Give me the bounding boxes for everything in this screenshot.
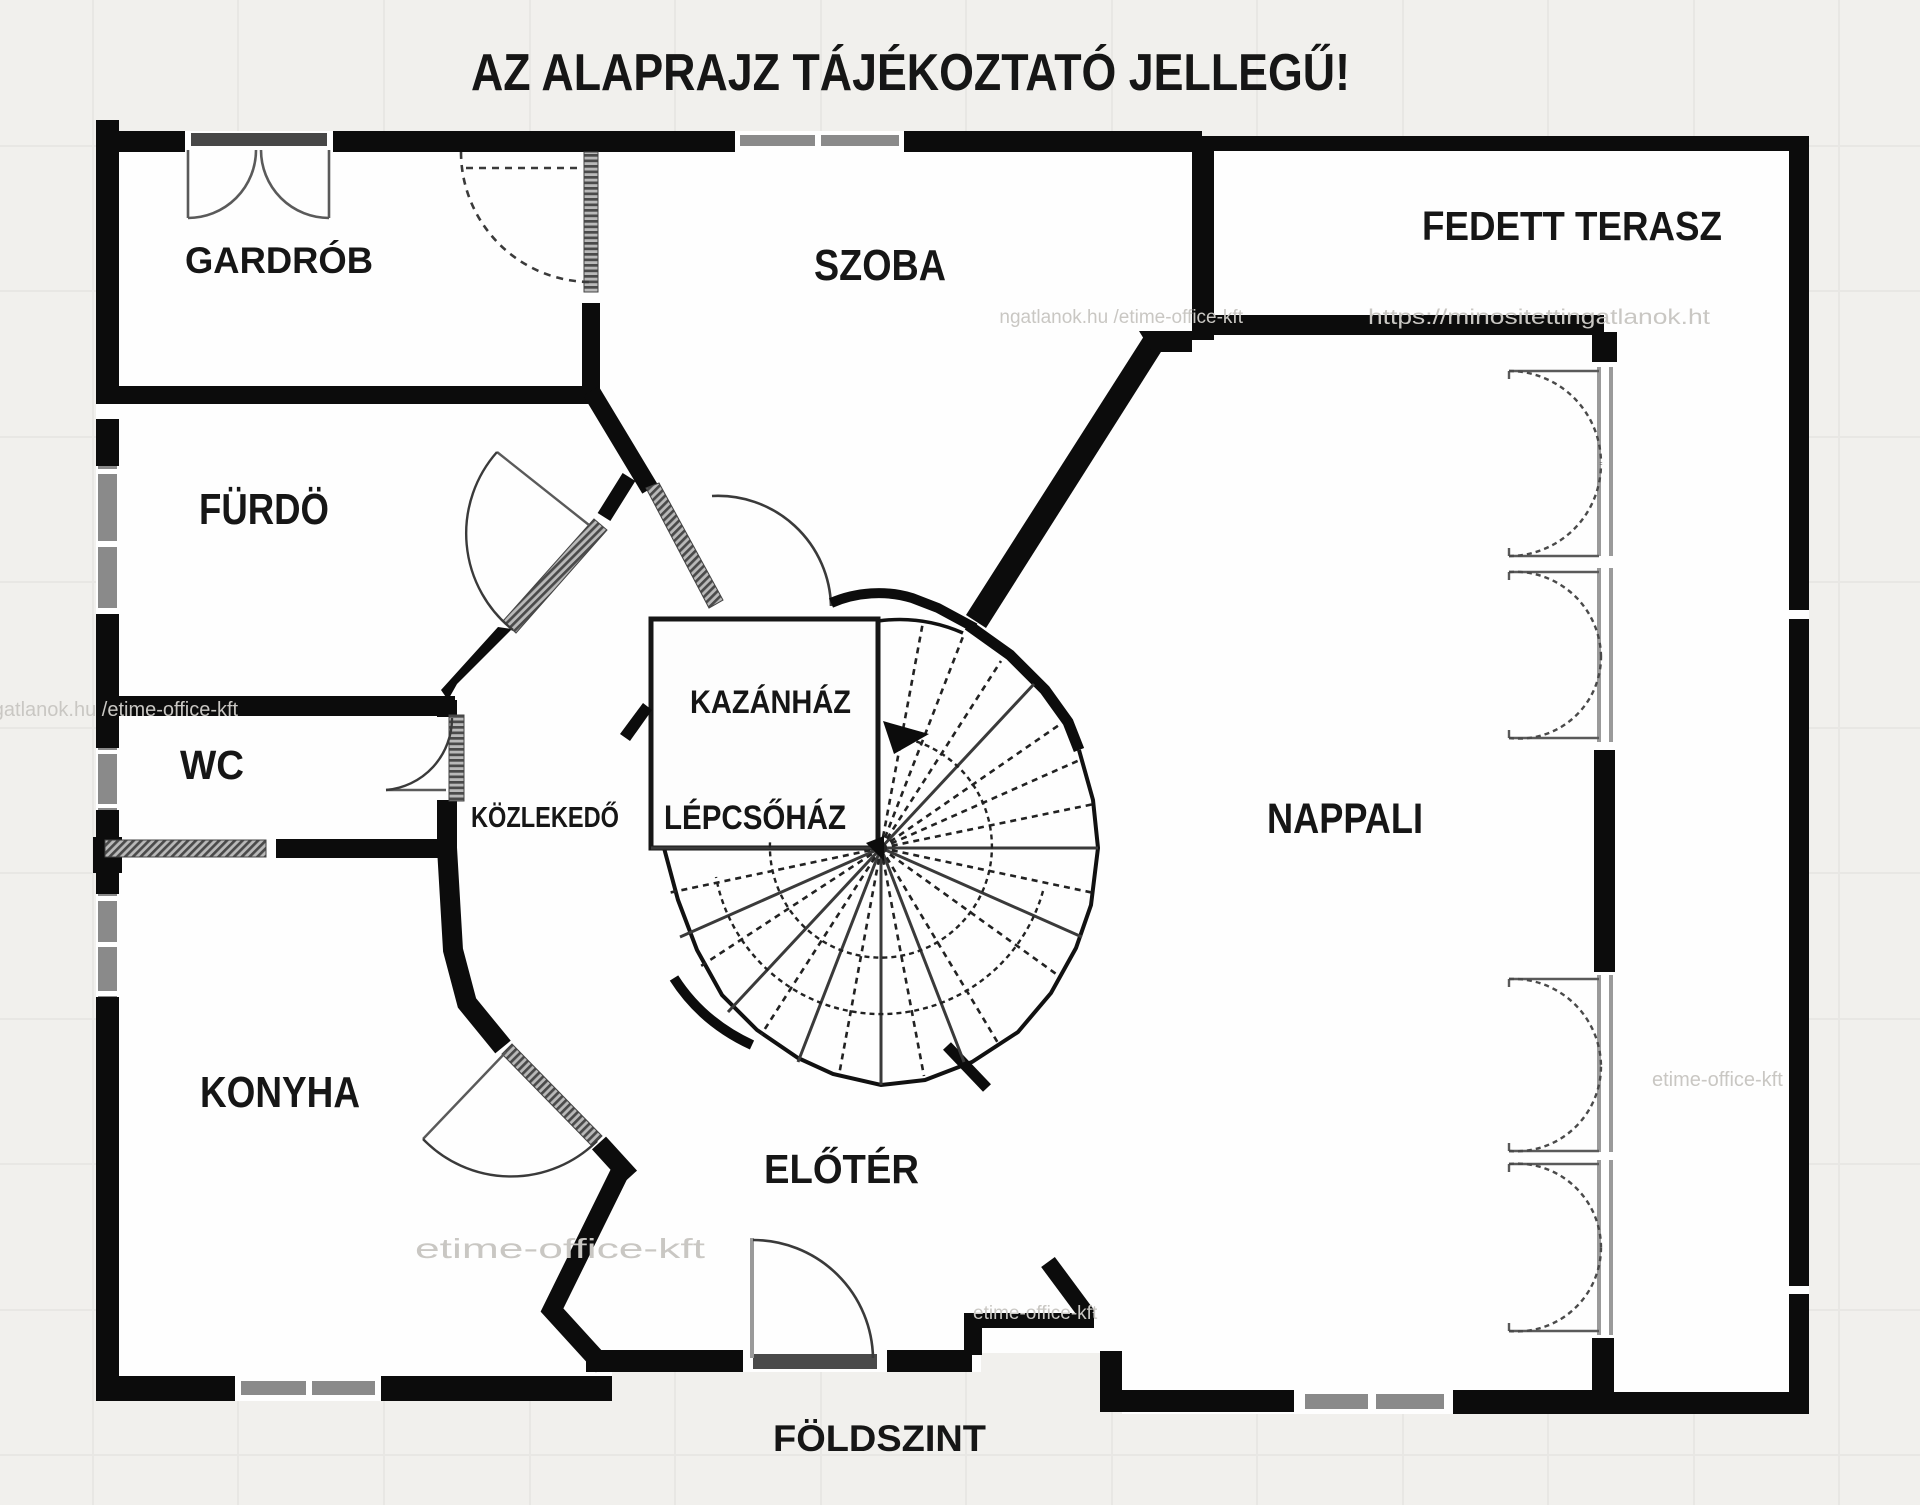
svg-text:ngatlanok.hu /etime-office-kft: ngatlanok.hu /etime-office-kft [999,307,1243,328]
svg-text:NAPPALI: NAPPALI [1267,795,1423,843]
svg-text:ettingatlanok.hu /etime-office: ettingatlanok.hu /etime-office-kft [0,699,239,721]
svg-text:FÜRDÖ: FÜRDÖ [199,485,329,534]
svg-text:SZOBA: SZOBA [814,241,946,290]
svg-text:etime-office-kft: etime-office-kft [973,1303,1098,1324]
svg-text:https://minositettingatlanok.h: https://minositettingatlanok.ht [1368,306,1710,329]
svg-text:ELŐTÉR: ELŐTÉR [764,1146,919,1192]
svg-text:KAZÁNHÁZ: KAZÁNHÁZ [690,684,851,720]
svg-text:GARDRÓB: GARDRÓB [185,239,373,281]
svg-text:AZ ALAPRAJZ TÁJÉKOZTATÓ JELLEG: AZ ALAPRAJZ TÁJÉKOZTATÓ JELLEGŰ! [471,43,1350,102]
svg-text:LÉPCSŐHÁZ: LÉPCSŐHÁZ [664,799,846,837]
svg-text:FÖLDSZINT: FÖLDSZINT [773,1418,986,1459]
svg-text:WC: WC [180,742,244,788]
svg-text:KÖZLEKEDŐ: KÖZLEKEDŐ [471,800,619,834]
svg-text:KONYHA: KONYHA [200,1068,360,1117]
svg-text:etime-office-kft: etime-office-kft [1652,1069,1783,1091]
svg-text:FEDETT TERASZ: FEDETT TERASZ [1422,203,1722,249]
svg-text:etime-office-kft: etime-office-kft [415,1233,705,1264]
